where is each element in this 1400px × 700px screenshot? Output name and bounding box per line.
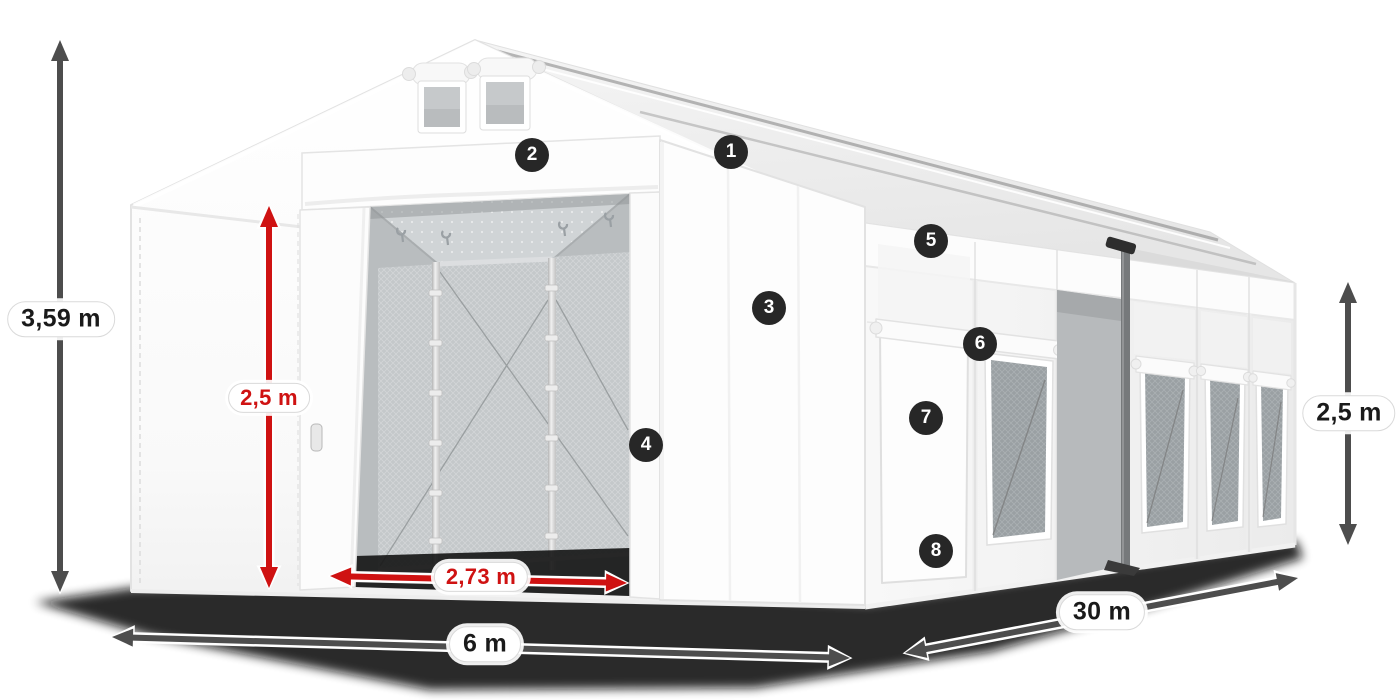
callout-badge-8[interactable]: 8 [919, 534, 953, 568]
callout-badge-5[interactable]: 5 [914, 224, 948, 258]
dimension-label-side-wall-height: 2,5 m [1302, 395, 1395, 431]
callout-badge-2[interactable]: 2 [515, 138, 549, 172]
diagram-stage: 3,59 m2,5 m2,73 m6 m30 m2,5 m12345678 [0, 0, 1400, 700]
dimension-label-side-length: 30 m [1059, 594, 1145, 630]
dimension-label-entrance-height: 2,5 m [228, 383, 310, 413]
callout-badge-3[interactable]: 3 [752, 291, 786, 325]
callout-badge-7[interactable]: 7 [909, 401, 943, 435]
callout-badge-1[interactable]: 1 [714, 135, 748, 169]
dimension-label-total-height: 3,59 m [7, 301, 115, 337]
dimension-label-entrance-width: 2,73 m [434, 562, 528, 592]
callout-badge-6[interactable]: 6 [963, 327, 997, 361]
dimension-label-front-width: 6 m [449, 626, 521, 662]
dimension-arrows-layer [0, 0, 1400, 700]
callout-badge-4[interactable]: 4 [629, 428, 663, 462]
